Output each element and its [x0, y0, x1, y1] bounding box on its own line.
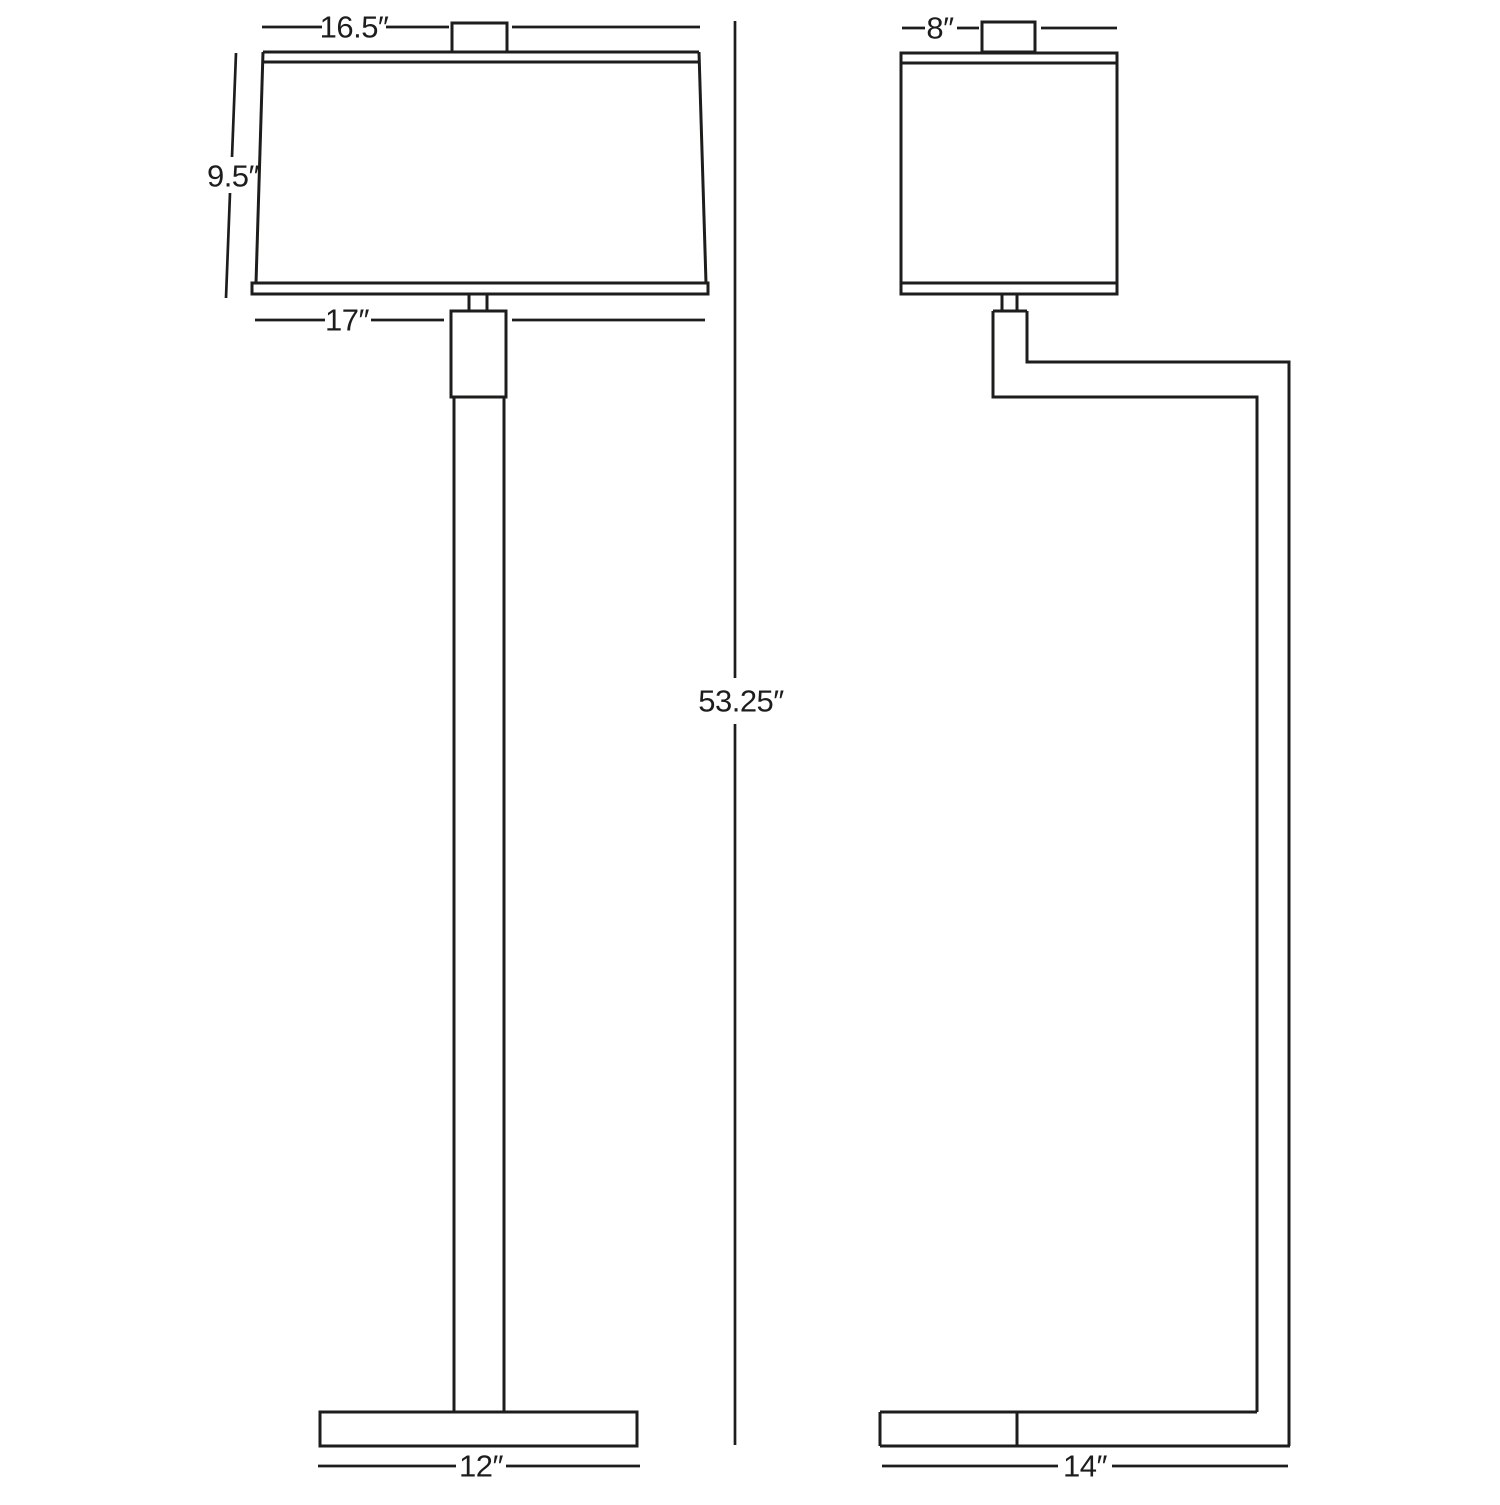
lamp-dimension-diagram: 16.5″ 9.5″ 17″ 53.25″ 12″ 8″ 14″ [0, 0, 1500, 1500]
front-shade-right-edge [699, 52, 706, 283]
dimension-labels: 16.5″ 9.5″ 17″ 53.25″ 12″ 8″ 14″ [207, 10, 1108, 1484]
dim-label-base-width: 12″ [459, 1449, 503, 1484]
dim-label-shade-bottom-width: 17″ [325, 303, 369, 338]
side-view [880, 22, 1290, 1446]
dim-label-shade-height: 9.5″ [207, 159, 260, 194]
side-shade-outline [901, 53, 1117, 294]
front-column-upper-block [451, 311, 506, 397]
front-base [320, 1412, 637, 1446]
dim-label-base-depth: 14″ [1063, 1449, 1107, 1484]
dim-label-shade-depth: 8″ [926, 11, 954, 46]
front-view [252, 23, 708, 1446]
front-shade-bottom-band [252, 283, 708, 294]
side-arm-inner-path [1027, 311, 1289, 1446]
diagram-svg: 16.5″ 9.5″ 17″ 53.25″ 12″ 8″ 14″ [0, 0, 1500, 1500]
dim-label-overall-height: 53.25″ [698, 684, 784, 719]
dimension-lines [226, 21, 1288, 1466]
side-arm-outer-path [993, 311, 1257, 1412]
front-finial [452, 23, 507, 52]
dim-label-shade-top-width: 16.5″ [320, 10, 389, 45]
side-finial [982, 22, 1035, 52]
